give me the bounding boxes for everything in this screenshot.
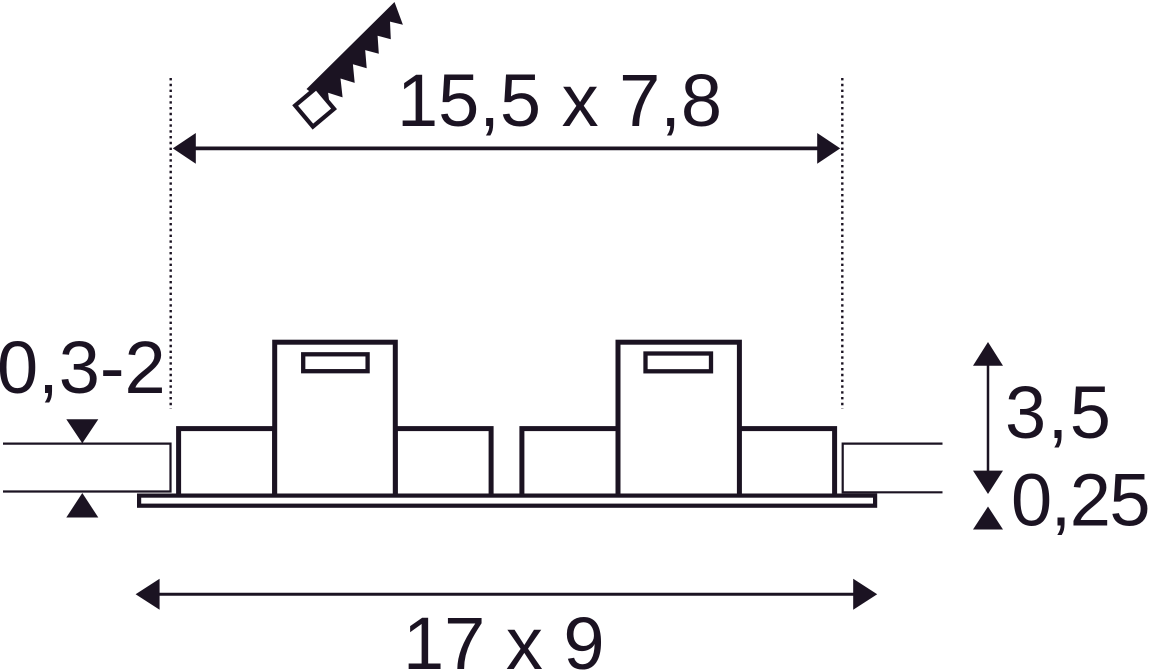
svg-text:0,3-2: 0,3-2 xyxy=(0,326,166,409)
svg-text:17 x 9: 17 x 9 xyxy=(403,602,605,671)
svg-text:15,5 x 7,8: 15,5 x 7,8 xyxy=(397,59,722,142)
svg-text:3,5: 3,5 xyxy=(1005,371,1112,454)
svg-text:0,25: 0,25 xyxy=(1011,459,1149,542)
